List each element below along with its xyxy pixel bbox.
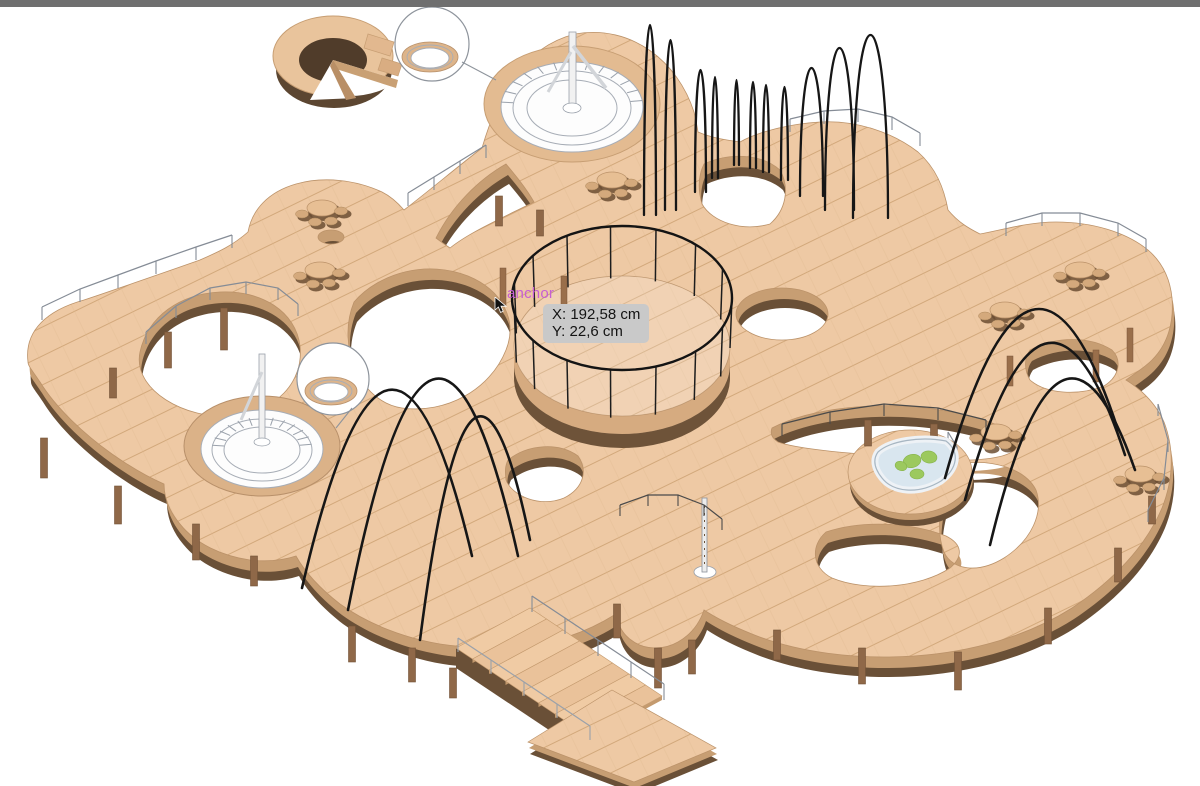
detail-callout-balloon xyxy=(395,7,496,81)
hot-tub-mast xyxy=(259,354,265,442)
cutaway-section-detail xyxy=(273,16,402,108)
model-canvas xyxy=(0,0,1200,786)
cursor-pointer xyxy=(494,297,508,315)
pavilion-mast xyxy=(569,32,576,108)
tooltip-y-readout: Y: 22,6 cm xyxy=(552,323,640,340)
anchor-label: anchor xyxy=(507,285,554,302)
coordinate-tooltip: X: 192,58 cm Y: 22,6 cm xyxy=(543,304,649,343)
model-viewport[interactable]: anchor X: 192,58 cm Y: 22,6 cm xyxy=(0,0,1200,786)
window-top-bar xyxy=(0,0,1200,7)
tooltip-x-readout: X: 192,58 cm xyxy=(552,306,640,323)
planted-pool xyxy=(875,439,955,490)
